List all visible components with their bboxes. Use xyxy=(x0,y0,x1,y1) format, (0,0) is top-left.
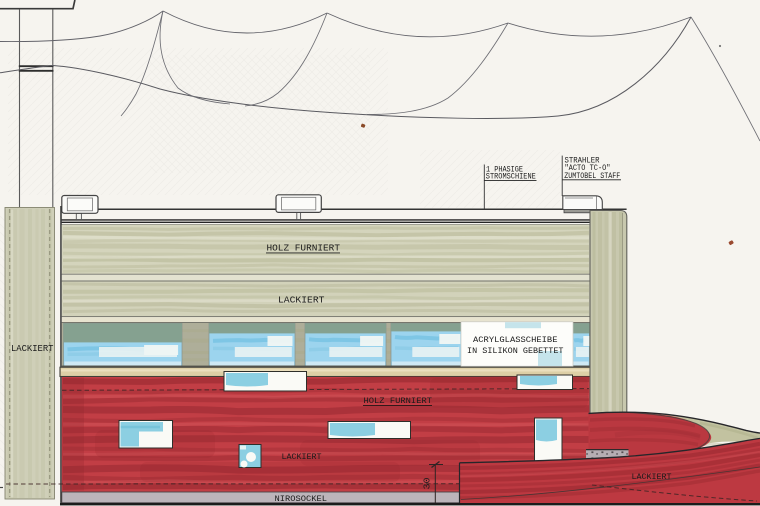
svg-text:LACKIERT: LACKIERT xyxy=(11,344,54,354)
svg-text:IN SILIKON GEBETTET: IN SILIKON GEBETTET xyxy=(467,346,564,356)
svg-text:HOLZ FURNIERT: HOLZ FURNIERT xyxy=(364,396,433,406)
svg-text:LACKIERT: LACKIERT xyxy=(278,296,325,306)
svg-text:NIROSOCKEL: NIROSOCKEL xyxy=(275,494,328,504)
svg-text:LACKIERT: LACKIERT xyxy=(632,472,672,482)
svg-text:30: 30 xyxy=(423,478,433,490)
svg-text:LACKIERT: LACKIERT xyxy=(282,452,322,462)
svg-text:HOLZ FURNIERT: HOLZ FURNIERT xyxy=(267,244,341,254)
svg-text:ACRYLGLASSCHEIBE: ACRYLGLASSCHEIBE xyxy=(473,335,558,345)
